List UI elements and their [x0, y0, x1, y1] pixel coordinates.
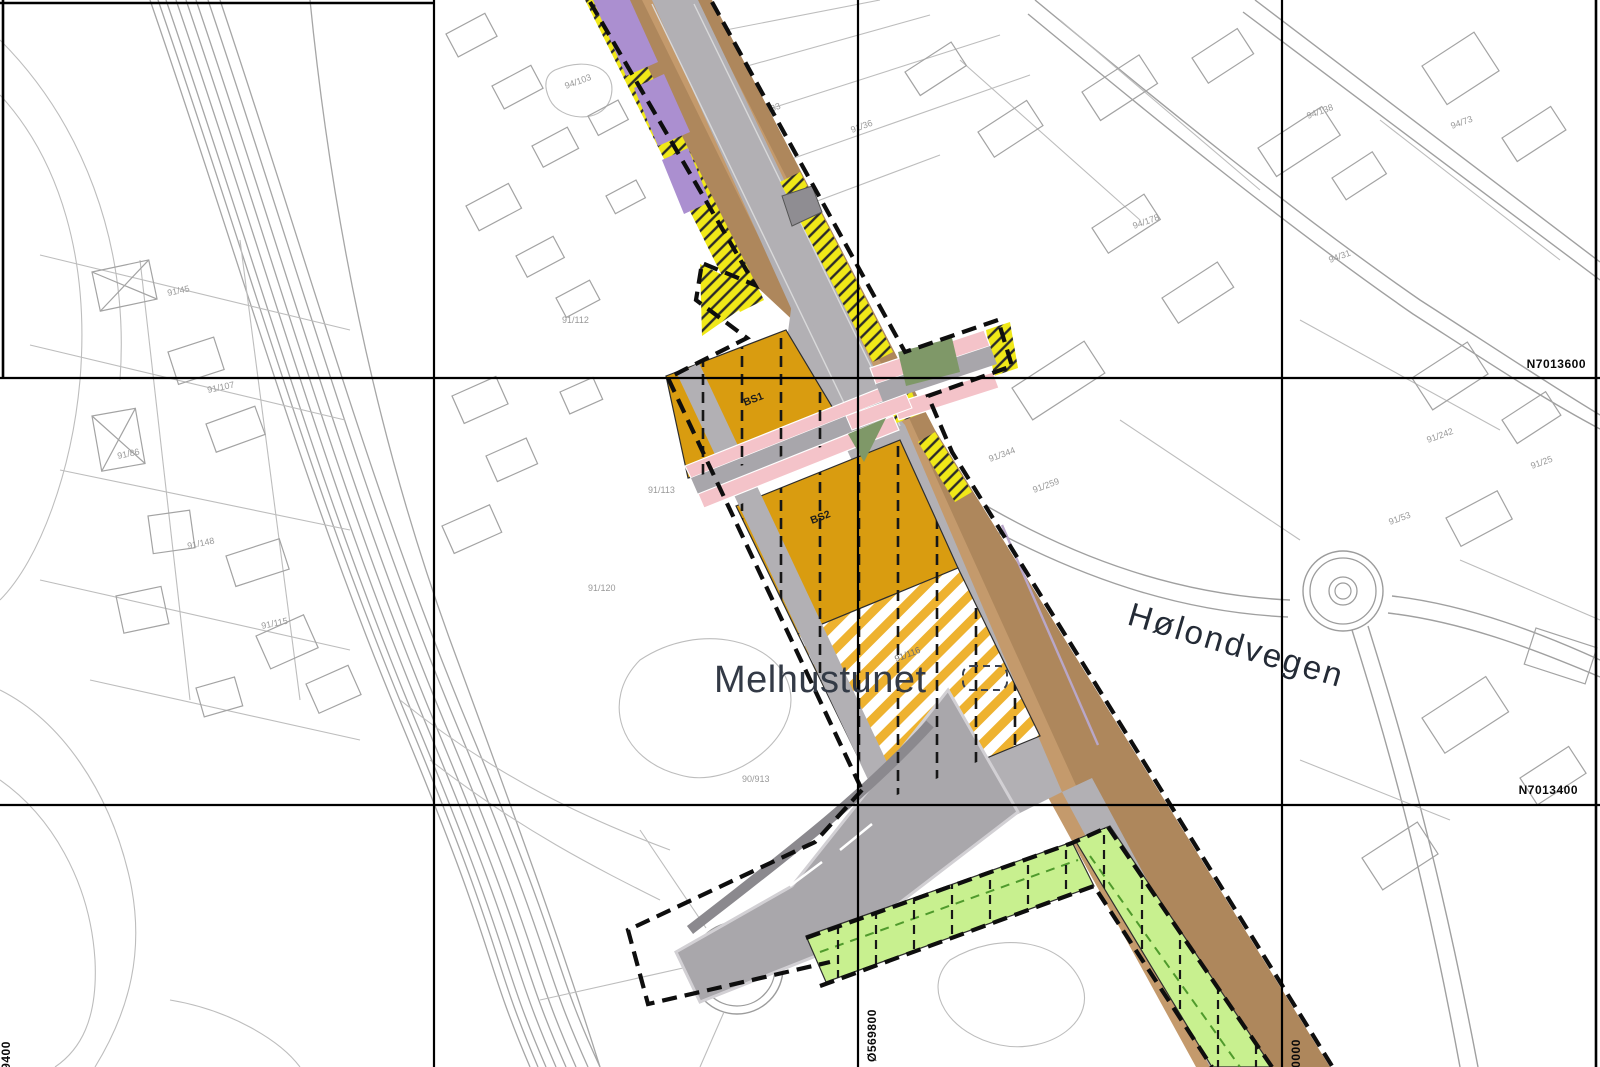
zoning-plan: [585, 0, 1332, 1067]
parcel-number-label: 91/53: [1387, 510, 1412, 527]
parcel-number-label: 94/103: [563, 72, 592, 91]
parcel-number-label: 91/242: [1425, 426, 1454, 445]
parcel-number-label: 91/120: [588, 583, 616, 593]
area-name-label: Melhustunet: [714, 659, 927, 701]
parcel-number-label: 94/31: [1327, 248, 1352, 265]
parcel-number-label: 91/113: [648, 485, 675, 495]
map-viewport[interactable]: 91/4591/10791/8691/14891/11594/10391/339…: [0, 0, 1600, 1067]
zoning-map-canvas[interactable]: 91/4591/10791/8691/14891/11594/10391/339…: [0, 0, 1600, 1067]
parcel-number-label: 91/86: [116, 446, 140, 460]
grid-northing-lower: N7013400: [1519, 783, 1578, 797]
highway-curves: [0, 0, 670, 1067]
grid-easting-left: Ø569400: [0, 1041, 13, 1067]
parcel-number-label: 91/112: [562, 315, 589, 325]
parcel-number-label: 91/45: [166, 283, 190, 297]
parcel-number-label: 90/913: [742, 774, 770, 784]
roundabout-east: [1303, 551, 1383, 631]
parcel-number-label: 94/73: [1449, 114, 1474, 131]
grid-northing-upper: N7013600: [1527, 357, 1586, 371]
parcel-number-label: 91/344: [987, 445, 1016, 464]
parcel-number-label: 91/25: [1529, 454, 1554, 471]
grid-easting-right: Ø570000: [1289, 1039, 1303, 1067]
grid-easting-mid: Ø569800: [865, 1009, 879, 1062]
parcel-number-label: 94/138: [1305, 102, 1334, 121]
streets-right: [960, 0, 1600, 1067]
parcel-number-label: 91/259: [1031, 476, 1060, 495]
parcel-number-label: 91/36: [849, 118, 874, 135]
parcel-number-label: 91/115: [260, 616, 288, 631]
parcel-number-label: 91/148: [186, 535, 215, 551]
